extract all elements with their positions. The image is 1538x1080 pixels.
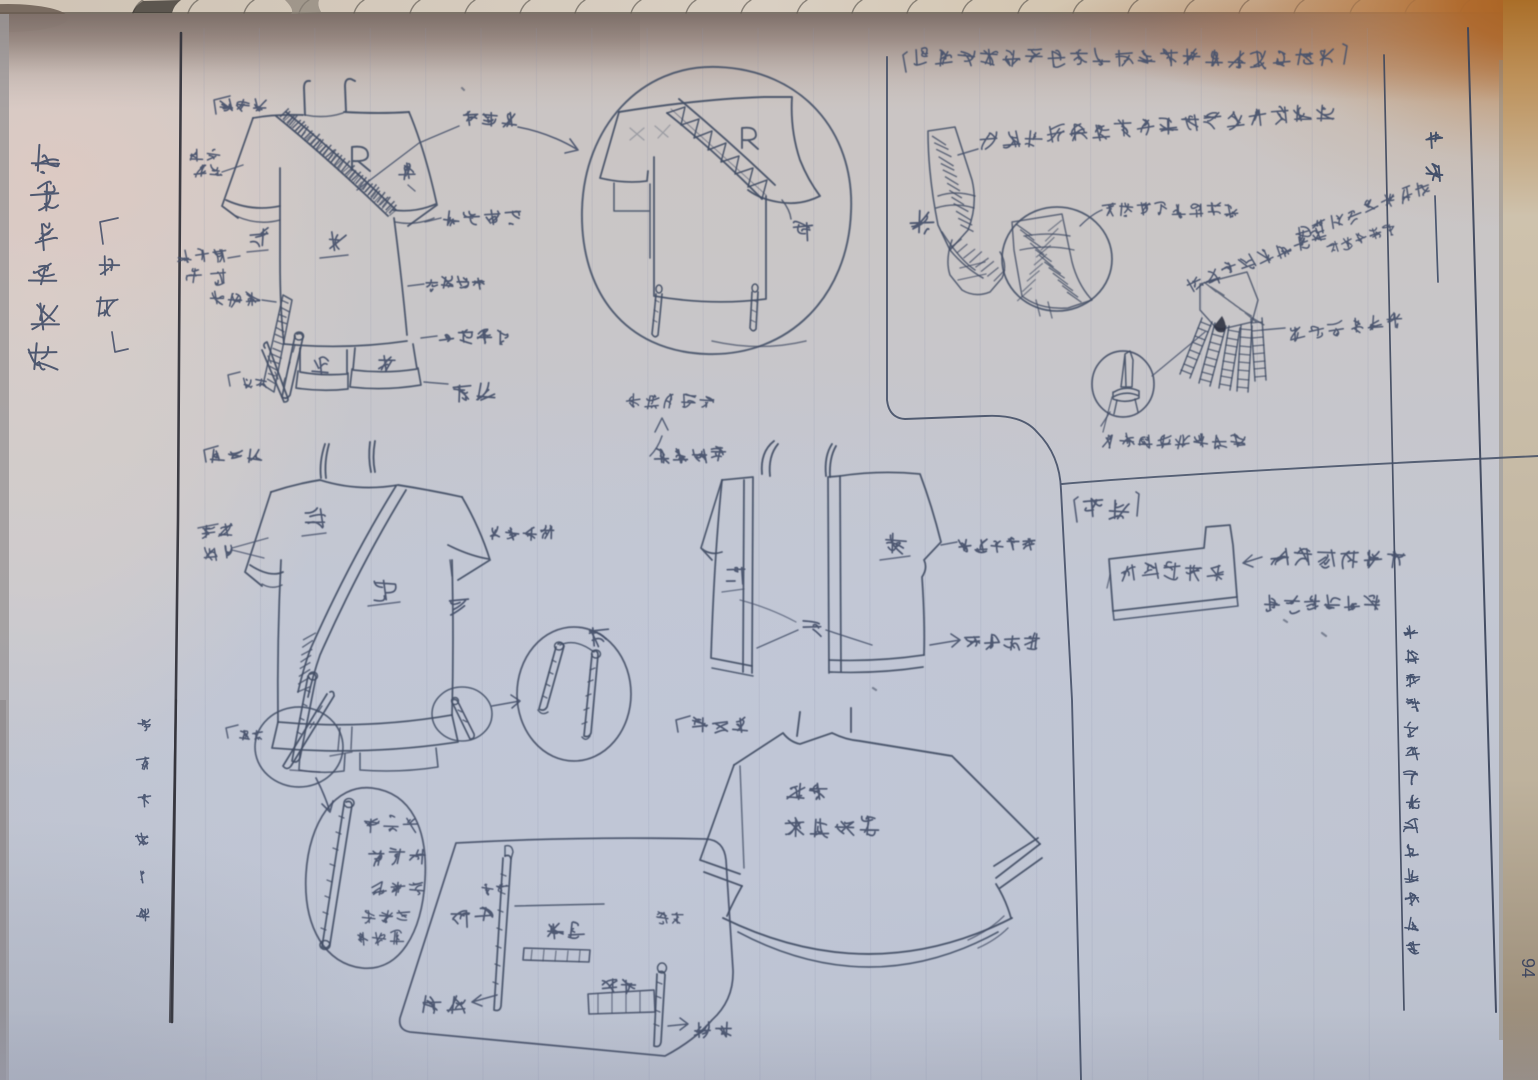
svg-text:94: 94 — [1518, 958, 1538, 978]
